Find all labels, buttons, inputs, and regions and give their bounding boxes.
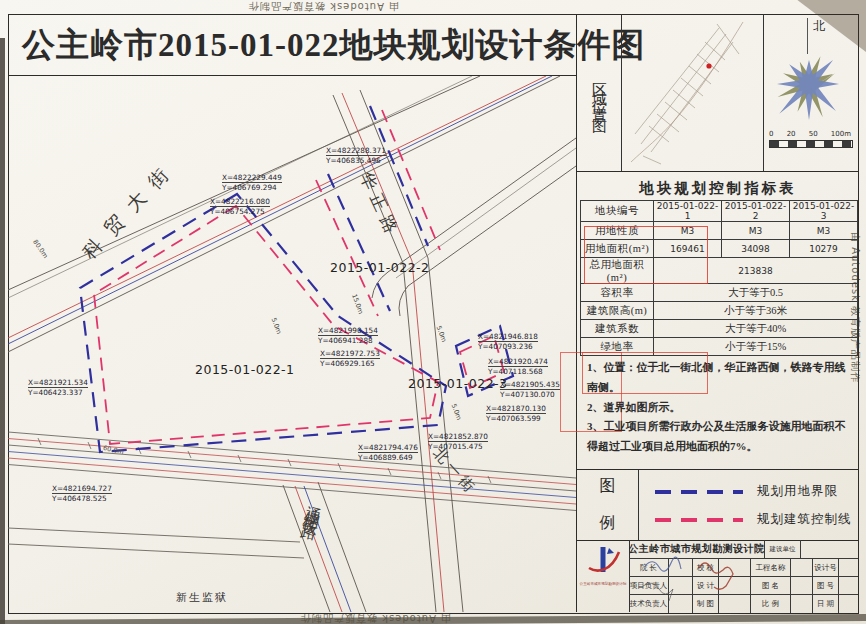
red-dash-sample (655, 518, 743, 522)
plot-label-2: 2015-01-022-2 (330, 260, 430, 275)
title-block-grid: 公主岭市城市规划勘测设计院 建设单位 院 长 校 核 工程名称 设计号 项目负责… (629, 540, 858, 612)
title-block-row-2: 项目负责人 设 计 图 名 图 号 (629, 577, 858, 595)
title-block-row-1: 院 长 校 核 工程名称 设计号 (629, 559, 858, 577)
blue-dash-sample (655, 490, 743, 494)
coord-callout: X=4821794.476Y=406889.649 (358, 443, 418, 463)
title-block-row-3: 技术负责人 制 图 比 例 日 期 (629, 595, 858, 613)
autodesk-watermark-top: 由 Autodesk 教育版产品制作 (248, 0, 399, 13)
sig-cell (719, 559, 751, 576)
indicator-table-title: 地块规划控制指标表 (578, 179, 858, 198)
region-location-panel: 区域位置图 北 0 (577, 14, 858, 172)
table-row-height-limit: 建筑限高(m) 小于等于36米 (581, 302, 858, 320)
road-kemao-dajie (8, 76, 560, 352)
institute-logo (585, 544, 621, 578)
coord-callout: X=4821694.727Y=406478.525 (52, 484, 112, 504)
red-review-mark-table (584, 226, 708, 284)
legend-item-control-line: 规划建筑控制线 (655, 511, 852, 528)
red-review-mark-notes (582, 352, 708, 394)
place-label-xinsheng: 新生监狱 (176, 590, 228, 605)
sig-cell (719, 595, 751, 613)
client-value-blank (801, 540, 858, 558)
coord-callout: X=4821905.435Y=407130.070 (500, 380, 560, 400)
city-sketch-map (621, 14, 761, 169)
scale-bar-labels: 0 20 50 100m (769, 130, 851, 138)
wind-rose-area: 北 0 20 50 100m (763, 14, 858, 171)
client-label: 建设单位 (765, 540, 801, 558)
wind-rose (765, 40, 855, 126)
coord-callout: X=4821972.753Y=406929.165 (320, 349, 380, 369)
north-label: 北 (813, 18, 825, 35)
title-block: 公主岭市城市规划勘测设计院 公主岭市城市规划勘测设计院 建设单位 院 长 校 核… (577, 540, 858, 612)
coord-callout: X=4822288.371Y=406835.496 (326, 146, 386, 166)
legend-title: 图 例 (577, 470, 639, 540)
coord-callout: X=4822229.449Y=406769.294 (222, 173, 282, 193)
sig-cell (669, 577, 693, 594)
building-control-red (94, 110, 504, 444)
sig-cell (669, 559, 693, 576)
coord-callout: X=4821920.474Y=407118.568 (488, 357, 548, 377)
logo-caption: 公主岭市城市规划勘测设计院 (580, 582, 627, 586)
table-row-plot-id: 地块编号 2015-01-022-1 2015-01-022-2 2015-01… (581, 201, 858, 222)
table-row-building-coeff: 建筑系数 大于等于40% (581, 320, 858, 338)
plot-label-3: 2015-01-022-3 (408, 376, 508, 391)
coord-callout: X=4821946.818Y=407093.236 (478, 332, 538, 352)
note-line-2: 2、道界如图所示。 (587, 398, 850, 418)
site-location-dot (706, 63, 711, 68)
legend-section: 图 例 规划用地界限 规划建筑控制线 (577, 470, 858, 541)
page-title: 公主岭市2015-01-022地块规划设计条件图 (22, 23, 570, 68)
note-line-3: 3、工业项目所需行政办公及生活服务设施用地面积不得超过工业项目总用地面积的7%。 (587, 417, 850, 457)
region-map-thumbnail (621, 14, 764, 171)
plot-label-1: 2015-01-022-1 (195, 362, 295, 377)
planning-boundary-blue (80, 106, 513, 452)
table-row-far: 容积率 大于等于0.5 (581, 284, 858, 302)
coord-callout: X=4821921.534Y=406423.337 (28, 378, 88, 398)
sig-cell (719, 577, 751, 594)
coord-callout: X=4822216.080Y=406754.275 (210, 197, 270, 217)
coord-callout: X=4821870.130Y=407063.599 (486, 404, 546, 424)
legend-item-boundary: 规划用地界限 (655, 483, 838, 500)
institute-logo-cell: 公主岭市城市规划勘测设计院 (577, 540, 630, 612)
sig-cell (669, 595, 693, 613)
scan-edge-left (0, 38, 5, 624)
region-panel-label: 区域位置图 (577, 14, 622, 171)
institute-name: 公主岭市城市规划勘测设计院 (629, 540, 765, 558)
scale-bar (769, 140, 853, 148)
road-bottom-left (8, 528, 304, 558)
coord-callout: X=4821990.154Y=406941.288 (318, 326, 378, 346)
coord-callout: X=4821852.870Y=407015.475 (428, 432, 488, 452)
title-block-header-row: 公主岭市城市规划勘测设计院 建设单位 (629, 540, 858, 559)
scanned-sheet-stage: 由 Autodesk 教育版产品制作 由 Autodesk 教育版产品制作 由 … (0, 0, 866, 624)
